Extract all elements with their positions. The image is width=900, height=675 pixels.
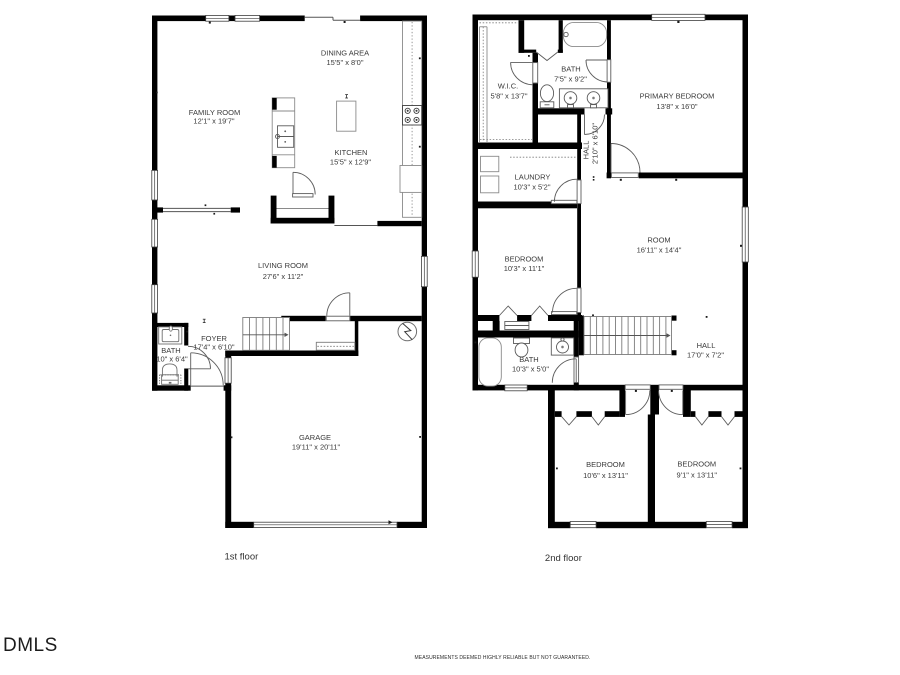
- svg-text:BATH: BATH: [519, 355, 538, 364]
- svg-text:10" x 6'4": 10" x 6'4": [156, 355, 188, 364]
- svg-text:12'1" x 19'7": 12'1" x 19'7": [193, 117, 234, 126]
- svg-text:1st floor: 1st floor: [225, 552, 259, 563]
- svg-text:10'3" x 5'0": 10'3" x 5'0": [512, 365, 549, 374]
- svg-text:15'5" x 12'9": 15'5" x 12'9": [330, 158, 371, 167]
- svg-text:HALL: HALL: [582, 141, 591, 160]
- svg-text:BEDROOM: BEDROOM: [505, 255, 544, 264]
- svg-text:BEDROOM: BEDROOM: [586, 460, 625, 469]
- svg-text:BATH: BATH: [161, 346, 180, 355]
- svg-text:LIVING ROOM: LIVING ROOM: [258, 261, 308, 270]
- svg-text:9'1" x 13'11": 9'1" x 13'11": [677, 471, 718, 480]
- svg-text:LAUNDRY: LAUNDRY: [515, 173, 551, 182]
- svg-text:17'4" x 6'10": 17'4" x 6'10": [193, 342, 234, 351]
- svg-text:MEASUREMENTS DEEMED HIGHLY REL: MEASUREMENTS DEEMED HIGHLY RELIABLE BUT …: [415, 655, 591, 661]
- svg-text:5'8" x 13'7": 5'8" x 13'7": [491, 92, 528, 101]
- svg-text:2nd floor: 2nd floor: [545, 553, 582, 564]
- svg-text:10'3" x 5'2": 10'3" x 5'2": [514, 183, 551, 192]
- svg-text:15'5" x 8'0": 15'5" x 8'0": [327, 58, 364, 67]
- svg-text:10'3" x 11'1": 10'3" x 11'1": [504, 264, 545, 273]
- svg-text:KITCHEN: KITCHEN: [335, 148, 368, 157]
- svg-text:DMLS: DMLS: [3, 635, 58, 656]
- svg-text:PRIMARY BEDROOM: PRIMARY BEDROOM: [640, 92, 715, 101]
- svg-text:17'0" x 7'2": 17'0" x 7'2": [687, 351, 724, 360]
- svg-text:BEDROOM: BEDROOM: [677, 460, 716, 469]
- svg-text:GARAGE: GARAGE: [299, 433, 331, 442]
- svg-text:19'11" x 20'11": 19'11" x 20'11": [292, 443, 341, 452]
- svg-text:13'8" x 16'0": 13'8" x 16'0": [656, 102, 697, 111]
- svg-text:10'6" x 13'11": 10'6" x 13'11": [583, 471, 628, 480]
- svg-text:W.I.C.: W.I.C.: [498, 82, 518, 91]
- svg-text:16'11" x 14'4": 16'11" x 14'4": [637, 246, 682, 255]
- svg-text:27'6" x 11'2": 27'6" x 11'2": [263, 272, 304, 281]
- svg-text:BATH: BATH: [561, 65, 580, 74]
- svg-text:7'5" x 9'2": 7'5" x 9'2": [554, 75, 587, 84]
- svg-text:ROOM: ROOM: [647, 236, 670, 245]
- svg-text:HALL: HALL: [697, 341, 716, 350]
- svg-text:2'10" x 6'10": 2'10" x 6'10": [591, 123, 600, 164]
- svg-text:DINING AREA: DINING AREA: [321, 49, 369, 58]
